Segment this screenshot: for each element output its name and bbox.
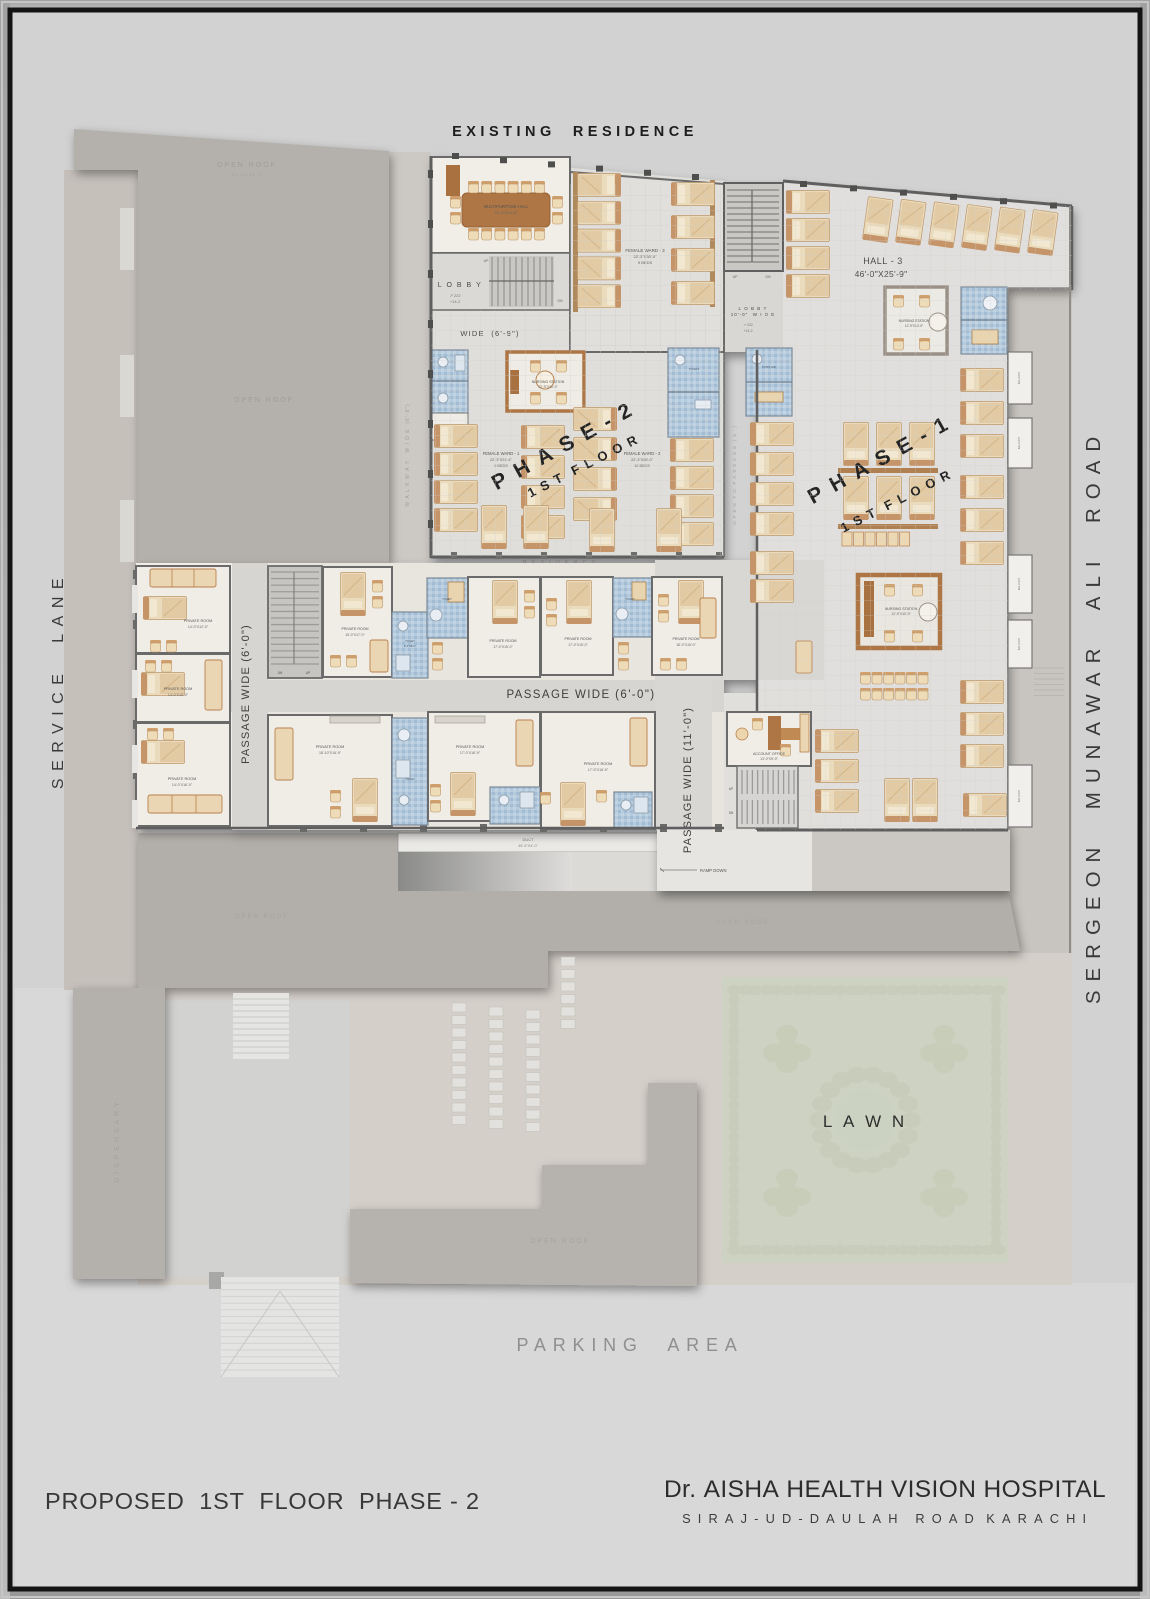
svg-text:OPEN ROOF: OPEN ROOF	[235, 914, 289, 920]
svg-text:UP: UP	[733, 275, 739, 279]
svg-text:PRIVATE ROOM: PRIVATE ROOM	[316, 745, 345, 749]
svg-text:↗ 222: ↗ 222	[743, 323, 753, 327]
svg-text:DN: DN	[557, 299, 563, 303]
svg-text:UP: UP	[306, 671, 310, 675]
svg-text:UP: UP	[729, 787, 733, 791]
svg-text:14'-0"X12'-0": 14'-0"X12'-0"	[188, 625, 209, 629]
svg-text:PRIVATE ROOM: PRIVATE ROOM	[164, 687, 193, 691]
svg-text:L A W N: L A W N	[823, 1112, 907, 1131]
svg-text:BALCONY: BALCONY	[1017, 638, 1021, 651]
svg-text:O P E N T O P A S S A G E (: O P E N T O P A S S A G E ( 6 ' )	[732, 425, 737, 524]
svg-text:17'-0"X16'-9": 17'-0"X16'-9"	[460, 751, 481, 755]
svg-text:TOILET: TOILET	[405, 639, 415, 643]
svg-text:OPEN ROOF: OPEN ROOF	[530, 1238, 590, 1245]
svg-text:PRIVATE ROOM: PRIVATE ROOM	[184, 619, 213, 623]
svg-text:PRIVATE ROOM: PRIVATE ROOM	[672, 637, 699, 641]
svg-text:PRIVATE ROOM: PRIVATE ROOM	[168, 777, 197, 781]
svg-text:EXISTING RESIDENCE: EXISTING RESIDENCE	[452, 124, 698, 140]
svg-text:DN: DN	[765, 275, 771, 279]
svg-text:TOILET: TOILET	[405, 777, 415, 781]
svg-text:ACCOUNT OFFICE: ACCOUNT OFFICE	[753, 752, 786, 756]
svg-text:17'-0"X15'-0": 17'-0"X15'-0"	[568, 643, 588, 647]
svg-text:OPEN ROOF: OPEN ROOF	[234, 397, 294, 404]
svg-text:W A L K W A Y W I D E (6'-9: W A L K W A Y W I D E (6'-9")	[405, 403, 411, 506]
svg-text:+14-2: +14-2	[450, 299, 461, 304]
svg-text:13'-0"X9'-0": 13'-0"X9'-0"	[760, 757, 778, 761]
svg-text:PARKING AREA: PARKING AREA	[516, 1335, 743, 1355]
svg-text:BALCONY: BALCONY	[1017, 437, 1021, 450]
svg-text:PRIVATE ROOM: PRIVATE ROOM	[456, 745, 485, 749]
svg-text:PRIVATE ROOM: PRIVATE ROOM	[489, 639, 516, 643]
svg-text:PROPOSED 1ST FLOOR PHASE -: PROPOSED 1ST FLOOR PHASE - 2	[45, 1488, 480, 1514]
svg-text:PRIVATE ROOM: PRIVATE ROOM	[341, 627, 368, 631]
svg-text:DN: DN	[729, 811, 734, 815]
svg-text:S I R A J - U D - D A U L A H: S I R A J - U D - D A U L A H R O A D K …	[682, 1511, 1088, 1526]
svg-text:PASSAGE WIDE (6'-0"): PASSAGE WIDE (6'-0")	[240, 624, 252, 764]
svg-text:18'-0"X15'-0": 18'-0"X15'-0"	[676, 643, 696, 647]
svg-text:TOILET: TOILET	[625, 597, 635, 601]
svg-text:17'-9"X16'-9": 17'-9"X16'-9"	[588, 768, 609, 772]
svg-text:OPEN ROOF: OPEN ROOF	[716, 920, 770, 926]
svg-text:TOILET: TOILET	[442, 597, 452, 601]
svg-text:14'-0"X16'-0": 14'-0"X16'-0"	[172, 783, 193, 787]
svg-text:D I S P E N S A R Y: D I S P E N S A R Y	[114, 1101, 121, 1183]
svg-text:PRIVATE ROOM: PRIVATE ROOM	[584, 762, 613, 766]
svg-text:+14-2: +14-2	[743, 329, 752, 333]
svg-text:18'-10"X16'-9": 18'-10"X16'-9"	[319, 751, 342, 755]
svg-text:UP: UP	[484, 259, 490, 263]
svg-text:Dr. AISHA HEALTH VISION HOSPIT: Dr. AISHA HEALTH VISION HOSPITAL	[664, 1476, 1106, 1503]
svg-text:PRIVATE ROOM: PRIVATE ROOM	[564, 637, 591, 641]
svg-text:8'-0"X8'-0": 8'-0"X8'-0"	[404, 644, 416, 648]
svg-text:DN: DN	[278, 671, 283, 675]
svg-text:PASSAGE WIDE (11'-0"): PASSAGE WIDE (11'-0")	[682, 707, 694, 853]
svg-text:BALCONY: BALCONY	[1017, 578, 1021, 591]
svg-text:15'-0"X17'-0": 15'-0"X17'-0"	[345, 633, 365, 637]
svg-text:DUCT: DUCT	[522, 837, 534, 842]
svg-text:BALCONY: BALCONY	[1017, 790, 1021, 803]
svg-text:21'-3"X14'-6": 21'-3"X14'-6"	[494, 210, 518, 215]
svg-text:46'-6"X4'-0": 46'-6"X4'-0"	[518, 844, 538, 848]
svg-text:OPEN ROOF: OPEN ROOF	[217, 162, 277, 169]
svg-text:BALCONY: BALCONY	[1017, 372, 1021, 385]
svg-text:RAMP DOWN: RAMP DOWN	[700, 868, 727, 873]
svg-text:PASSAGE WIDE (6'-0"): PASSAGE WIDE (6'-0")	[506, 689, 655, 701]
svg-text:SERVICE LANE: SERVICE LANE	[50, 571, 67, 789]
svg-text:MULTIPURPOSE HALL: MULTIPURPOSE HALL	[484, 204, 529, 209]
svg-text:SERGEON MUNAWAR ALI ROAD: SERGEON MUNAWAR ALI ROAD	[1082, 428, 1105, 1004]
svg-text:17'-0"X15'-0": 17'-0"X15'-0"	[493, 645, 513, 649]
svg-text:26-0X30-0: 26-0X30-0	[232, 172, 262, 177]
svg-text:L O B B Y: L O B B Y	[438, 282, 483, 289]
svg-text:14'-0"X10'-0": 14'-0"X10'-0"	[168, 693, 189, 697]
svg-text:↗ 222: ↗ 222	[449, 293, 461, 298]
